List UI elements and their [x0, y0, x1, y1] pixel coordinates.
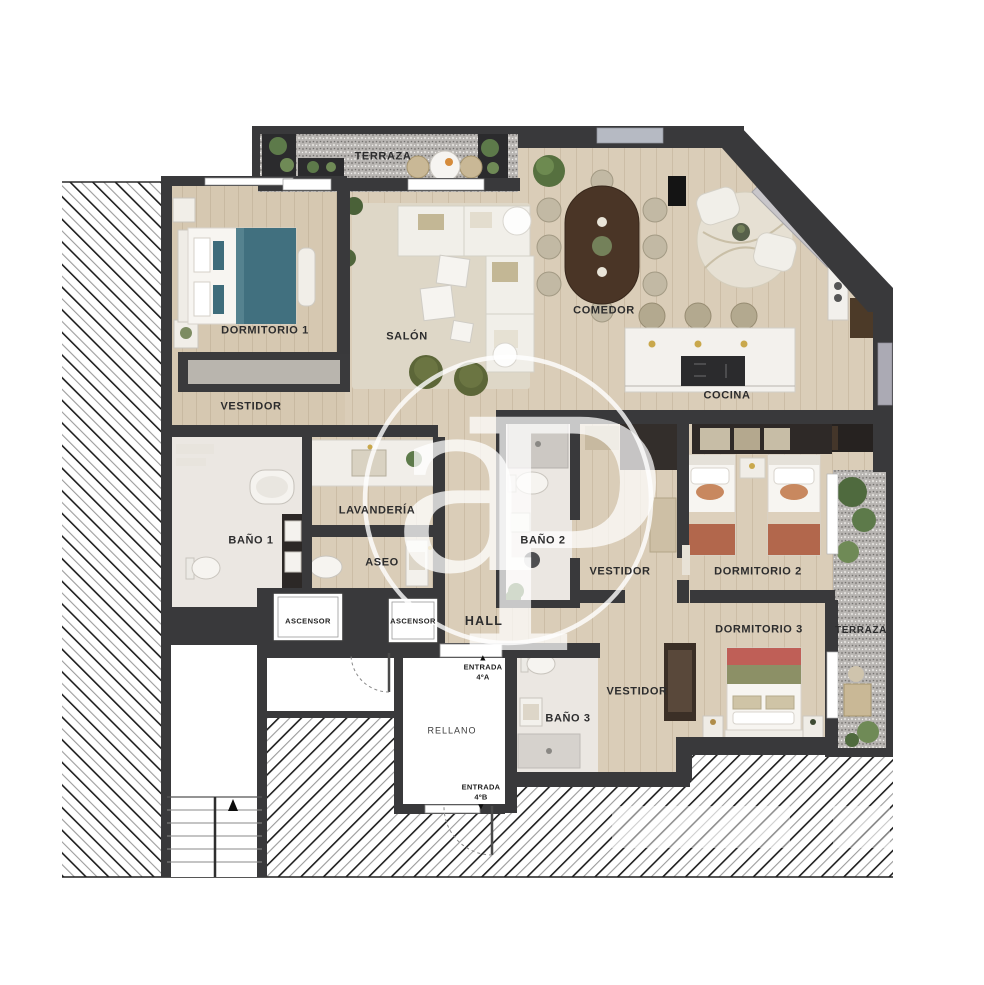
room-label-vestidor-3: VESTIDOR — [606, 687, 667, 698]
room-label-cocina: COCINA — [704, 391, 751, 402]
room-label-bano-2: BAÑO 2 — [520, 536, 565, 547]
entrance-4a: ▲ ENTRADA 4ºA — [464, 654, 503, 683]
room-label-aseo: ASEO — [365, 558, 399, 569]
room-label-vestidor-2: VESTIDOR — [589, 567, 650, 578]
faded-overlays — [612, 806, 890, 848]
lift-label-2: ASCENSOR — [390, 617, 436, 625]
room-label-comedor: COMEDOR — [573, 306, 635, 317]
floorplan-canvas: a P TERRAZA DORMITORIO 1 SALÓN COMEDOR C… — [0, 0, 984, 985]
room-label-salon: SALÓN — [386, 332, 428, 343]
entrance-4b: ENTRADA 4ºB ▼ — [462, 783, 501, 812]
room-label-terraza-top: TERRAZA — [355, 152, 412, 163]
room-label-dormitorio-2: DORMITORIO 2 — [714, 567, 802, 578]
room-label-terraza-right: TERRAZA — [835, 626, 887, 636]
entrance-4b-arrow-down-icon: ▼ — [462, 803, 501, 812]
entrance-4a-arrow-up-icon: ▲ — [464, 654, 503, 663]
room-label-bano-1: BAÑO 1 — [228, 536, 273, 547]
lift-label-1: ASCENSOR — [285, 617, 331, 625]
entrance-4b-line1: ENTRADA — [462, 783, 501, 792]
wardrobe-vestidor-1 — [178, 352, 350, 392]
room-label-hall: HALL — [465, 615, 503, 628]
vestidor-3-wardrobe — [664, 643, 696, 721]
room-label-dormitorio-3: DORMITORIO 3 — [715, 625, 803, 636]
landing-label: RELLANO — [427, 727, 476, 736]
room-label-bano-3: BAÑO 3 — [545, 714, 590, 725]
entrance-4a-line2: 4ºA — [476, 673, 489, 682]
entrance-4a-line1: ENTRADA — [464, 663, 503, 672]
room-label-dormitorio-1: DORMITORIO 1 — [221, 326, 309, 337]
room-label-vestidor-1: VESTIDOR — [220, 402, 281, 413]
room-label-lavanderia: LAVANDERÍA — [339, 506, 415, 517]
floorplan-drawing: a P — [0, 0, 984, 985]
entrance-4b-line2: 4ºB — [474, 793, 487, 802]
